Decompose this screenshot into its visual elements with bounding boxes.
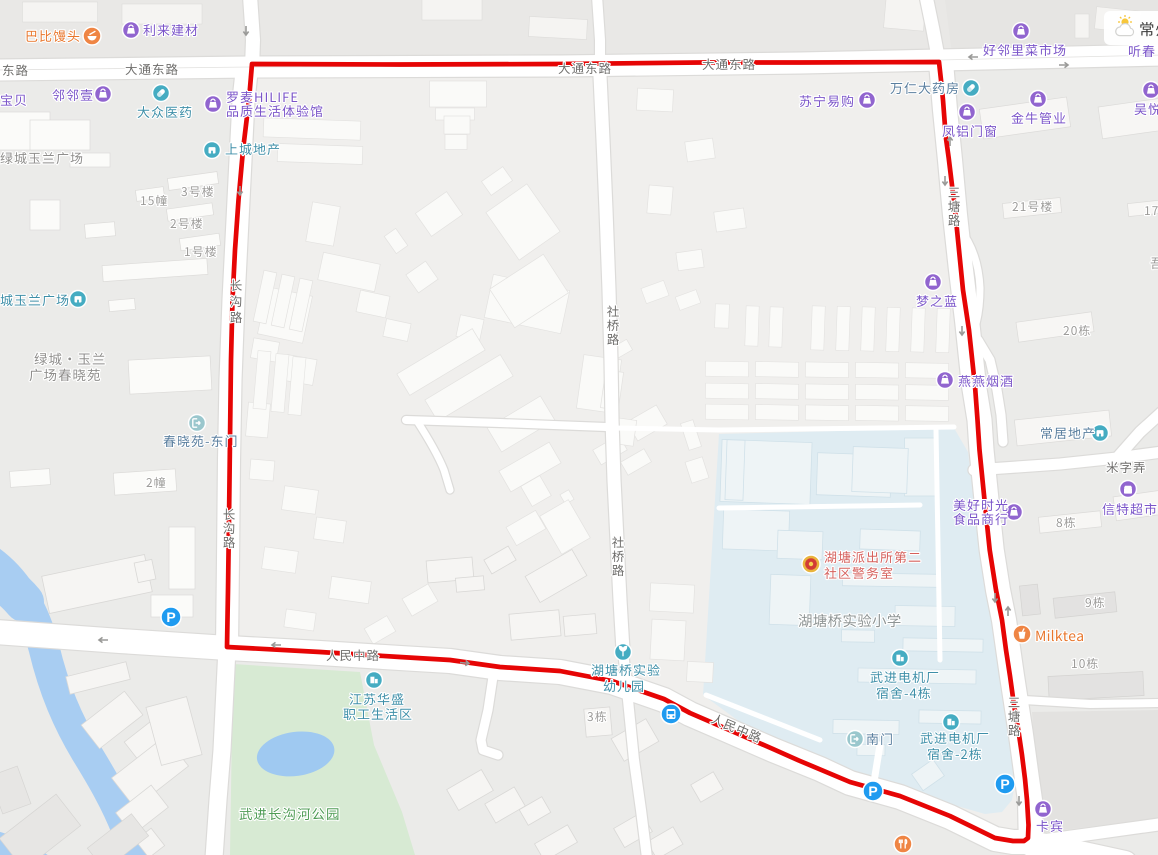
svg-text:P: P xyxy=(166,609,175,625)
svg-text:P: P xyxy=(1000,776,1009,792)
svg-text:P: P xyxy=(868,783,877,799)
